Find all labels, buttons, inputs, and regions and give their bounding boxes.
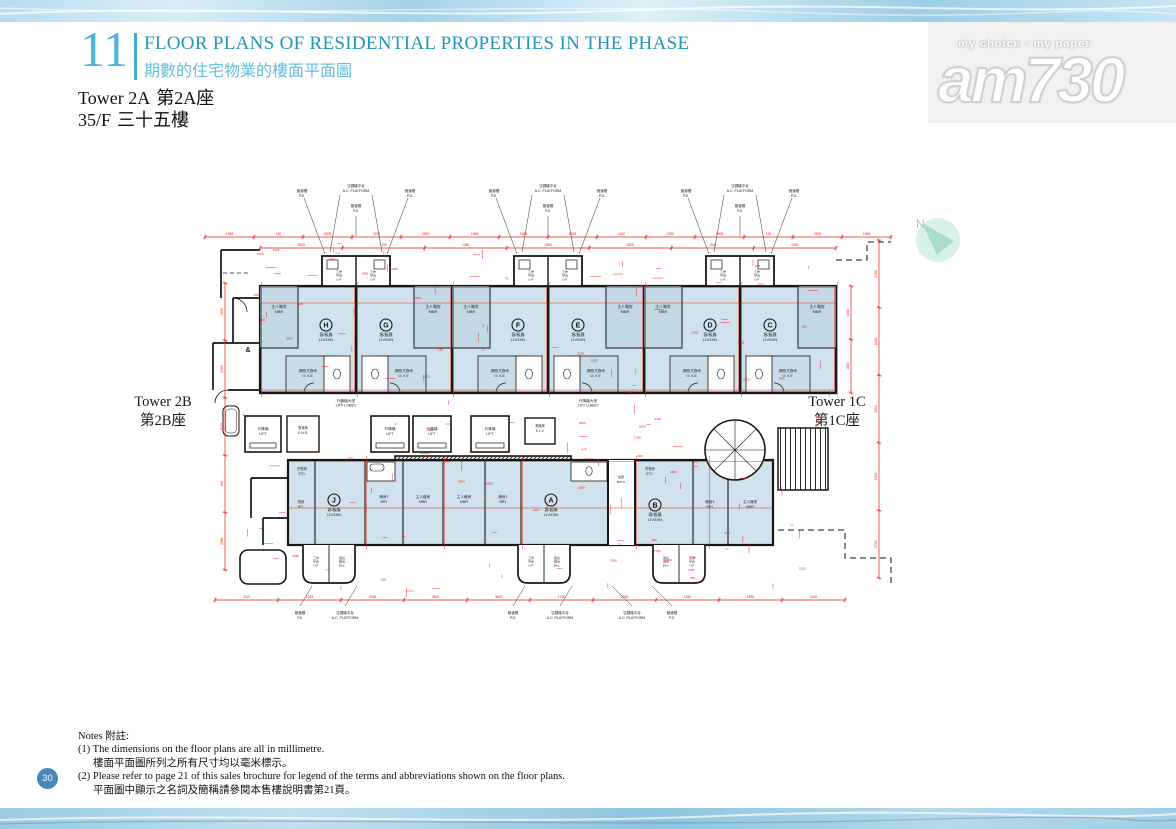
note-1-zh: 樓面平面圖所列之所有尺寸均以毫米標示。 [93, 757, 565, 770]
svg-text:BAL.: BAL. [339, 563, 346, 567]
svg-text:電梯房: 電梯房 [298, 425, 309, 430]
svg-text:P.D.: P.D. [791, 194, 797, 198]
svg-text:&: & [245, 347, 250, 354]
note-1-en: (1) The dimensions on the floor plans ar… [78, 743, 565, 756]
svg-text:1100: 1100 [665, 558, 672, 562]
svg-text:U.P.: U.P. [528, 277, 534, 281]
svg-text:MBR: MBR [467, 309, 476, 314]
tower-name-zh: 第2A座 [156, 88, 214, 108]
svg-text:2300: 2300 [757, 283, 764, 287]
north-arrow: N [908, 210, 964, 266]
svg-text:P.D.: P.D. [353, 209, 359, 213]
svg-text:A.C. PLATFORM: A.C. PLATFORM [619, 616, 646, 620]
svg-text:電錶房: 電錶房 [535, 423, 545, 428]
svg-text:MBR: MBR [419, 500, 427, 504]
svg-text:3350: 3350 [578, 486, 585, 490]
svg-text:O. KIT.: O. KIT. [399, 374, 410, 378]
svg-text:貯物房: 貯物房 [297, 466, 307, 471]
svg-text:MBR: MBR [429, 309, 438, 314]
svg-text:A.C. PLATFORM: A.C. PLATFORM [343, 189, 370, 193]
svg-text:P.D.: P.D. [299, 194, 305, 198]
svg-text:2938: 2938 [369, 595, 377, 599]
svg-text:G: G [383, 323, 389, 330]
svg-text:1550: 1550 [253, 293, 260, 297]
svg-text:2360: 2360 [391, 267, 398, 271]
svg-text:150: 150 [766, 232, 772, 236]
svg-text:空調機平台: 空調機平台 [551, 610, 569, 615]
top-units-band: H客/飯廳LIV/DIN主人睡房MBR開放式廚房O. KIT.G客/飯廳LIV/… [260, 286, 836, 393]
svg-text:2100: 2100 [874, 270, 878, 278]
svg-text:LIFT: LIFT [259, 432, 267, 436]
svg-text:BAL.: BAL. [554, 563, 561, 567]
svg-text:650: 650 [690, 576, 695, 580]
lift-shaft: 升降機LIFT [245, 416, 281, 452]
svg-text:主人睡房: 主人睡房 [416, 494, 431, 499]
svg-text:1584: 1584 [520, 232, 528, 236]
svg-text:1780: 1780 [634, 436, 641, 440]
svg-text:A.C. PLATFORM: A.C. PLATFORM [727, 189, 754, 193]
svg-text:睡房1: 睡房1 [705, 499, 714, 504]
note-2-zh: 平面圖中顯示之名詞及簡稱請參閱本售樓說明書第21頁。 [93, 784, 565, 797]
svg-text:A: A [548, 498, 553, 505]
svg-text:900: 900 [298, 302, 303, 306]
svg-text:管道槽: 管道槽 [351, 203, 362, 208]
svg-text:LIV/DIN: LIV/DIN [327, 512, 341, 517]
svg-text:2335: 2335 [414, 296, 421, 300]
compass-n-label: N [916, 217, 925, 231]
svg-text:75: 75 [505, 276, 509, 280]
svg-text:2825: 2825 [324, 232, 332, 236]
svg-text:LIV/DIN: LIV/DIN [763, 337, 777, 342]
svg-text:3393: 3393 [874, 405, 878, 413]
svg-text:1150: 1150 [425, 454, 432, 458]
svg-text:2728: 2728 [874, 540, 878, 548]
svg-text:開放式廚房: 開放式廚房 [299, 368, 317, 373]
svg-text:C: C [767, 323, 772, 330]
svg-text:2300: 2300 [220, 308, 224, 316]
svg-text:U.P.: U.P. [562, 277, 568, 281]
svg-text:LIFT: LIFT [486, 432, 494, 436]
svg-text:LIV/DIN: LIV/DIN [648, 517, 662, 522]
svg-text:管道槽: 管道槽 [489, 188, 500, 193]
header-divider [134, 33, 137, 80]
svg-text:睡房1: 睡房1 [379, 494, 388, 499]
svg-text:2360: 2360 [422, 232, 430, 236]
svg-text:2050: 2050 [292, 554, 299, 558]
svg-text:H: H [323, 323, 328, 330]
svg-text:1500: 1500 [874, 473, 878, 481]
svg-text:1780: 1780 [654, 549, 661, 553]
svg-text:2050: 2050 [689, 555, 696, 559]
svg-text:2825: 2825 [814, 232, 822, 236]
svg-text:1325: 1325 [257, 252, 264, 256]
bottom-units-band: J客/飯廳LIV/DINA客/飯廳LIV/DINB客/飯廳LIV/DIN廚房KI… [288, 460, 773, 545]
svg-text:LIV/DIN: LIV/DIN [703, 337, 717, 342]
svg-text:空調機平台: 空調機平台 [731, 183, 749, 188]
svg-text:STO.: STO. [646, 472, 653, 476]
svg-text:MBR: MBR [813, 309, 822, 314]
svg-text:2100: 2100 [846, 309, 850, 317]
svg-text:475: 475 [348, 457, 353, 461]
svg-text:4150: 4150 [810, 595, 818, 599]
svg-text:3450: 3450 [220, 365, 224, 373]
tower-2b-en: Tower 2B [117, 393, 209, 412]
svg-text:900: 900 [637, 454, 642, 458]
svg-text:U.P.: U.P. [370, 277, 376, 281]
svg-text:管道槽: 管道槽 [295, 610, 306, 615]
svg-text:MBR: MBR [746, 505, 754, 509]
svg-text:BR1: BR1 [381, 500, 388, 504]
svg-text:2050: 2050 [486, 481, 493, 485]
page-number-badge: 30 [37, 768, 58, 789]
svg-text:150: 150 [755, 264, 760, 268]
svg-text:O. KIT.: O. KIT. [591, 374, 602, 378]
svg-text:200: 200 [725, 531, 730, 535]
svg-text:LIFT LOBBY: LIFT LOBBY [336, 403, 357, 407]
svg-text:LIFT: LIFT [428, 432, 436, 436]
notes-heading: Notes 附註: [78, 730, 565, 743]
svg-text:2825: 2825 [579, 421, 586, 425]
svg-text:2110: 2110 [626, 390, 633, 394]
svg-text:升降機: 升降機 [484, 426, 495, 431]
svg-text:LIV/DIN: LIV/DIN [379, 337, 393, 342]
svg-text:A.C. PLATFORM: A.C. PLATFORM [535, 189, 562, 193]
svg-text:P.D.: P.D. [510, 616, 516, 620]
svg-text:200: 200 [533, 508, 538, 512]
svg-text:BAL.: BAL. [663, 563, 670, 567]
svg-text:U.P.: U.P. [754, 277, 760, 281]
svg-text:空調機平台: 空調機平台 [539, 183, 557, 188]
svg-text:廚房: 廚房 [298, 499, 305, 504]
svg-text:150: 150 [276, 232, 282, 236]
svg-text:管道槽: 管道槽 [735, 203, 746, 208]
section-number: 11 [80, 24, 128, 74]
svg-text:B: B [652, 503, 657, 510]
svg-text:3400: 3400 [654, 417, 661, 421]
svg-text:1100: 1100 [688, 568, 695, 572]
svg-text:管道槽: 管道槽 [681, 188, 692, 193]
svg-text:BR1: BR1 [707, 505, 714, 509]
svg-text:2050: 2050 [220, 537, 224, 545]
svg-text:475: 475 [581, 447, 586, 451]
svg-text:2360: 2360 [791, 243, 799, 247]
svg-text:升降機: 升降機 [384, 426, 395, 431]
svg-text:LIV/DIN: LIV/DIN [571, 337, 585, 342]
svg-text:1325: 1325 [423, 375, 430, 379]
svg-text:2360: 2360 [667, 232, 675, 236]
svg-text:空調機平台: 空調機平台 [336, 610, 354, 615]
svg-text:3600: 3600 [495, 595, 503, 599]
svg-text:2300: 2300 [639, 424, 646, 428]
svg-text:P.D.: P.D. [297, 616, 303, 620]
svg-text:P.D.: P.D. [491, 194, 497, 198]
svg-text:1968: 1968 [226, 232, 234, 236]
utility-platform-bump: 工作平台U.P.工作平台U.P. [322, 256, 390, 286]
svg-text:1584: 1584 [544, 243, 552, 247]
svg-text:LIFT: LIFT [386, 432, 394, 436]
svg-text:E: E [576, 323, 581, 330]
svg-text:BATH: BATH [617, 480, 625, 484]
lift-shaft: 升降機LIFT [371, 416, 409, 452]
floor-line: 35/F三十五樓 [78, 109, 214, 131]
svg-text:5325: 5325 [220, 423, 224, 431]
svg-text:1968: 1968 [863, 232, 871, 236]
svg-text:O. KIT.: O. KIT. [495, 374, 506, 378]
svg-text:管道槽: 管道槽 [297, 188, 308, 193]
svg-text:空調機平台: 空調機平台 [623, 610, 641, 615]
svg-text:開放式廚房: 開放式廚房 [779, 368, 797, 373]
svg-text:開放式廚房: 開放式廚房 [395, 368, 413, 373]
svg-text:A.C. PLATFORM: A.C. PLATFORM [332, 616, 359, 620]
lift-shaft: 升降機LIFT [413, 416, 451, 452]
svg-text:1150: 1150 [577, 351, 584, 355]
utility-platform-bump: 工作平台U.P.工作平台U.P. [514, 256, 582, 286]
svg-text:O. KIT.: O. KIT. [687, 374, 698, 378]
svg-text:升降機大堂: 升降機大堂 [579, 398, 598, 403]
svg-text:KIT.: KIT. [298, 505, 304, 509]
svg-text:650: 650 [381, 578, 386, 582]
svg-text:LIV/DIN: LIV/DIN [544, 512, 558, 517]
svg-text:200: 200 [802, 324, 807, 328]
svg-text:2360: 2360 [610, 559, 617, 563]
svg-text:開放式廚房: 開放式廚房 [491, 368, 509, 373]
svg-text:1550: 1550 [361, 272, 368, 276]
svg-text:1110: 1110 [243, 595, 250, 599]
svg-text:75: 75 [617, 542, 621, 546]
svg-text:U.P.: U.P. [528, 563, 534, 567]
svg-text:900: 900 [652, 538, 657, 542]
lift-shaft: 升降機LIFT [471, 416, 509, 452]
svg-text:MBR: MBR [275, 309, 284, 314]
tower-2b-zh: 第2B座 [117, 412, 209, 431]
balcony-bump: 工作平台U.P.露台露台BAL. [518, 545, 570, 583]
utility-platform-bump: 工作平台U.P.工作平台U.P. [706, 256, 774, 286]
svg-text:E.M.R.: E.M.R. [298, 431, 308, 435]
tower-name-en: Tower 2A [78, 88, 150, 108]
tower-floor-label: Tower 2A第2A座 35/F三十五樓 [78, 87, 214, 131]
svg-text:3400: 3400 [670, 470, 677, 474]
svg-text:D: D [707, 323, 712, 330]
svg-text:浴室: 浴室 [618, 474, 624, 479]
svg-text:1933: 1933 [306, 595, 314, 599]
floor-plan-drawing: &H客/飯廳LIV/DIN主人睡房MBR開放式廚房O. KIT.G客/飯廳LIV… [203, 178, 893, 643]
svg-text:管道槽: 管道槽 [597, 188, 608, 193]
svg-text:150: 150 [438, 347, 443, 351]
svg-text:1500: 1500 [846, 362, 850, 370]
svg-text:貯物房: 貯物房 [645, 466, 655, 471]
svg-text:E.L.V.: E.L.V. [536, 429, 545, 433]
svg-text:P.D.: P.D. [407, 194, 413, 198]
svg-text:開放式廚房: 開放式廚房 [587, 368, 605, 373]
svg-text:P.D.: P.D. [669, 616, 675, 620]
svg-text:2825: 2825 [627, 243, 635, 247]
balcony-bump: 工作平台U.P.露台露台BAL. [303, 545, 355, 583]
svg-text:主人睡房: 主人睡房 [743, 499, 758, 504]
svg-text:MBR: MBR [460, 500, 468, 504]
svg-text:管道槽: 管道槽 [667, 610, 678, 615]
svg-text:150: 150 [220, 481, 224, 487]
svg-text:1150: 1150 [642, 285, 649, 289]
am730-watermark: my choice · my paper am730 [928, 22, 1176, 123]
svg-text:MBR: MBR [621, 309, 630, 314]
svg-text:P.D.: P.D. [737, 209, 743, 213]
svg-text:1690: 1690 [747, 595, 755, 599]
am730-logo: am730 [938, 48, 1122, 112]
svg-text:開放式廚房: 開放式廚房 [683, 368, 701, 373]
svg-text:2825: 2825 [691, 331, 698, 335]
svg-text:F: F [516, 323, 521, 330]
svg-text:管道槽: 管道槽 [789, 188, 800, 193]
svg-text:1150: 1150 [618, 232, 625, 236]
svg-text:2335: 2335 [737, 340, 744, 344]
svg-text:升降機大堂: 升降機大堂 [337, 398, 356, 403]
notes: Notes 附註: (1) The dimensions on the floo… [78, 730, 565, 797]
svg-text:U.P.: U.P. [313, 563, 319, 567]
svg-text:P.D.: P.D. [599, 194, 605, 198]
svg-text:J: J [332, 498, 336, 505]
svg-text:3350: 3350 [427, 428, 434, 432]
page-title-zh: 期數的住宅物業的樓面平面圖 [144, 57, 352, 81]
svg-text:2825: 2825 [569, 232, 577, 236]
svg-text:2110: 2110 [799, 566, 806, 570]
bottom-border-decoration [0, 808, 1176, 829]
svg-text:2360: 2360 [458, 479, 465, 483]
svg-text:A.C. PLATFORM: A.C. PLATFORM [547, 616, 574, 620]
svg-text:O. KIT.: O. KIT. [303, 374, 314, 378]
tower-2b-label: Tower 2B 第2B座 [117, 393, 209, 431]
svg-text:管道槽: 管道槽 [543, 203, 554, 208]
svg-text:150: 150 [260, 318, 265, 322]
floor-name-zh: 三十五樓 [117, 110, 189, 130]
svg-text:LIV/DIN: LIV/DIN [511, 337, 525, 342]
top-border-waves [0, 0, 1176, 22]
svg-text:空調機平台: 空調機平台 [347, 183, 365, 188]
svg-text:1350: 1350 [684, 595, 692, 599]
svg-text:2825: 2825 [743, 378, 750, 382]
tower-line: Tower 2A第2A座 [78, 87, 214, 109]
svg-text:管道槽: 管道槽 [405, 188, 416, 193]
svg-text:睡房1: 睡房1 [498, 494, 507, 499]
svg-text:650: 650 [779, 376, 784, 380]
svg-text:3000: 3000 [443, 459, 450, 463]
svg-text:升降機: 升降機 [257, 426, 268, 431]
svg-text:P.D.: P.D. [683, 194, 689, 198]
svg-text:U.P.: U.P. [336, 277, 342, 281]
svg-text:P.D.: P.D. [545, 209, 551, 213]
svg-text:管道槽: 管道槽 [508, 610, 519, 615]
floor-name-en: 35/F [78, 110, 111, 130]
svg-text:LIV/DIN: LIV/DIN [319, 337, 333, 342]
brochure-page: my choice · my paper am730 11 FLOOR PLAN… [0, 0, 1176, 829]
svg-text:1325: 1325 [273, 248, 280, 252]
svg-text:2360: 2360 [462, 243, 470, 247]
page-title-en: FLOOR PLANS OF RESIDENTIAL PROPERTIES IN… [144, 33, 689, 55]
svg-text:5325: 5325 [874, 338, 878, 346]
svg-text:1968: 1968 [471, 232, 479, 236]
svg-text:STO.: STO. [298, 472, 305, 476]
svg-text:BR1: BR1 [500, 500, 507, 504]
note-2-en: (2) Please refer to page 21 of this sale… [78, 770, 565, 783]
svg-text:2335: 2335 [590, 359, 597, 363]
svg-text:主人睡房: 主人睡房 [457, 494, 472, 499]
svg-text:3000: 3000 [286, 336, 293, 340]
svg-text:LIFT LOBBY: LIFT LOBBY [578, 403, 599, 407]
svg-text:2825: 2825 [297, 243, 305, 247]
top-border-decoration [0, 0, 1176, 22]
bottom-border-waves [0, 808, 1176, 829]
svg-text:U.P.: U.P. [720, 277, 726, 281]
svg-text:4500: 4500 [432, 595, 440, 599]
